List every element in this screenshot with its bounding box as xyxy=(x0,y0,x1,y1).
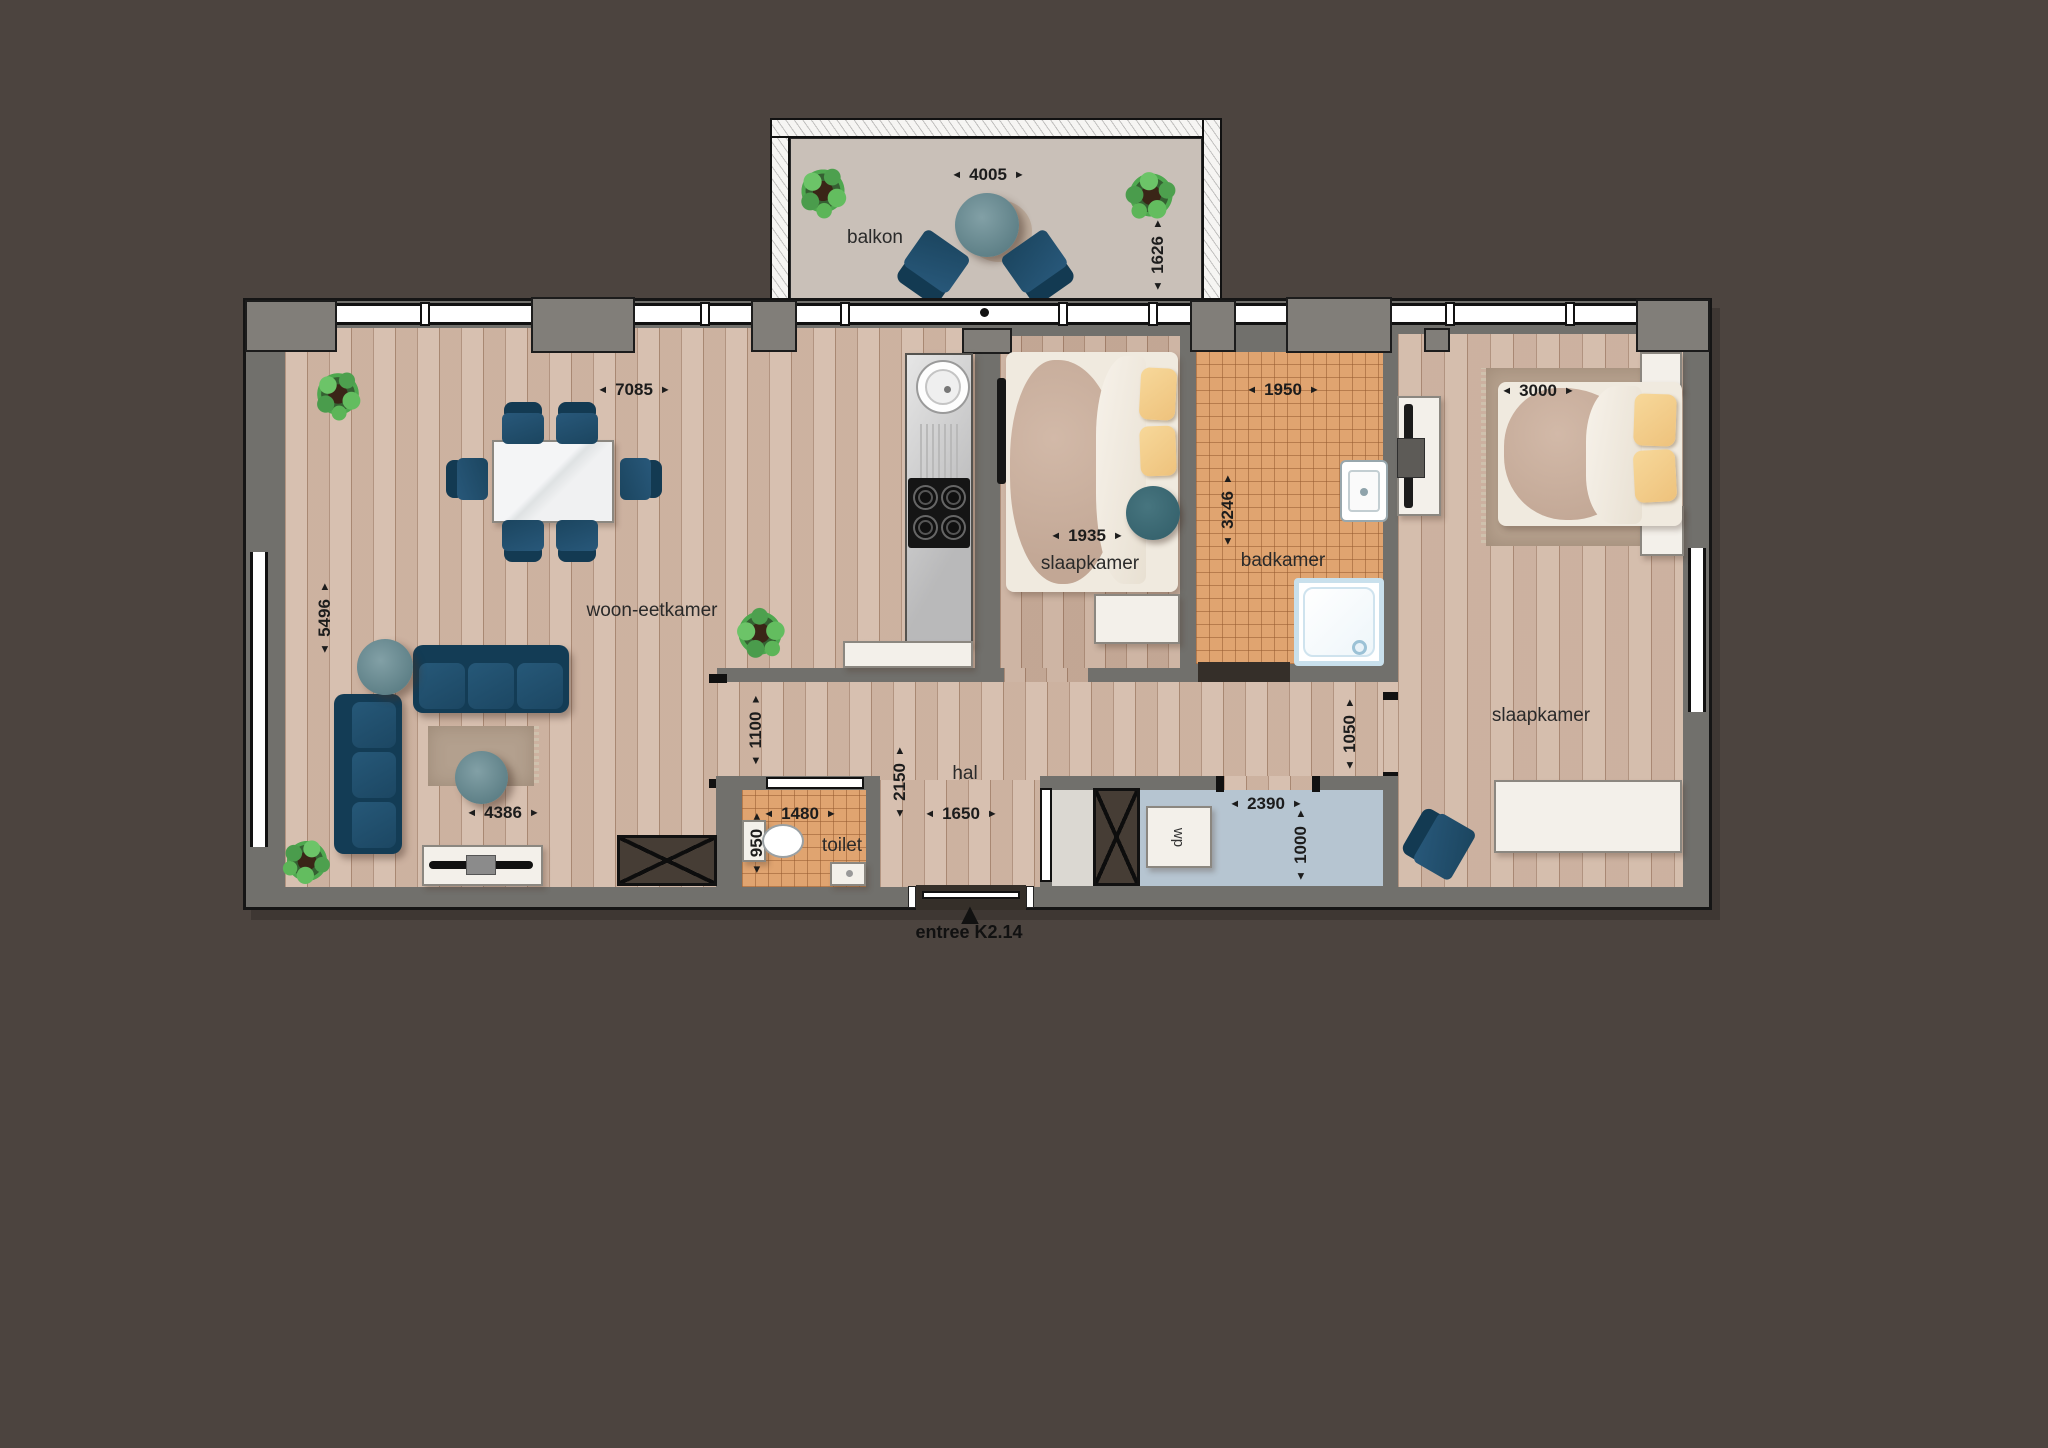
burner-icon xyxy=(913,485,938,510)
washbasin-drain xyxy=(1360,488,1368,496)
dim-arrow-right-icon: ► xyxy=(1113,531,1124,542)
dim-living-width-lower: ◄ 4386 ► xyxy=(443,801,563,825)
dim-value: 4386 xyxy=(484,803,522,823)
rug-fringe xyxy=(534,726,539,786)
window-right xyxy=(1688,548,1706,712)
dim-value: 4005 xyxy=(969,165,1007,185)
window-left xyxy=(250,552,268,847)
heat-pump-unit: wp xyxy=(1146,806,1212,868)
dim-arrow-right-icon: ► xyxy=(1014,170,1025,181)
room-label-living: woon-eetkamer xyxy=(587,600,718,622)
bed-1-duvet xyxy=(1096,356,1146,584)
room-label-hall: hal xyxy=(952,763,977,785)
dim-value: 1650 xyxy=(942,804,980,824)
plant-icon xyxy=(310,366,366,422)
dim-bedroom1-width: ◄ 1935 ► xyxy=(1027,524,1147,548)
dim-arrow-left-icon: ◄ xyxy=(1223,536,1234,547)
dim-arrow-right-icon: ► xyxy=(660,385,671,396)
window-mullion xyxy=(700,302,710,326)
dim-arrow-right-icon: ► xyxy=(752,811,763,822)
door-opening-bathroom xyxy=(1198,662,1290,682)
door-opening-closet xyxy=(1224,776,1312,790)
dim-arrow-left-icon: ◄ xyxy=(1229,799,1240,810)
wall-pillar xyxy=(1424,328,1450,352)
door-jamb xyxy=(709,674,727,683)
dim-arrow-right-icon: ► xyxy=(1564,386,1575,397)
dim-value: 1000 xyxy=(1291,826,1311,864)
wall-pillar xyxy=(245,300,337,352)
wall-pillar xyxy=(1190,300,1236,352)
dining-chair xyxy=(446,458,488,500)
bed-1-bench xyxy=(1094,594,1180,644)
dim-arrow-left-icon: ◄ xyxy=(1501,386,1512,397)
dim-arrow-left-icon: ◄ xyxy=(1050,531,1061,542)
dim-value: 1050 xyxy=(1340,715,1360,753)
door-jamb xyxy=(1312,776,1320,792)
door-jamb xyxy=(1383,692,1398,700)
entry-label: entree K2.14 xyxy=(915,922,1022,943)
dim-arrow-left-icon: ◄ xyxy=(751,755,762,766)
wall-pillar xyxy=(751,300,797,352)
door-opening-bedroom-2 xyxy=(1383,700,1398,772)
dim-arrow-right-icon: ► xyxy=(1223,473,1234,484)
dim-value: 5496 xyxy=(315,599,335,637)
balcony-railing-right xyxy=(1202,118,1222,302)
kitchen-cabinet xyxy=(843,641,973,668)
dim-hall-right-depth: ◄ 1050 ► xyxy=(1338,684,1362,784)
window-mullion xyxy=(1445,302,1455,326)
door-jamb xyxy=(908,886,916,908)
dim-value: 1100 xyxy=(746,712,766,749)
dim-value: 2150 xyxy=(890,763,910,801)
floor-closet-left xyxy=(1052,790,1093,886)
dim-value: 1950 xyxy=(1264,380,1302,400)
dim-arrow-right-icon: ► xyxy=(826,809,837,820)
dim-bathroom-width: ◄ 1950 ► xyxy=(1223,378,1343,402)
bed-1-pillow xyxy=(1139,425,1177,476)
sofa-vertical xyxy=(334,694,402,854)
dining-chair xyxy=(502,402,544,444)
dim-toilet-depth: ◄ 950 ► xyxy=(745,798,769,888)
balcony-table xyxy=(955,193,1019,257)
burner-icon xyxy=(941,485,966,510)
wall-toilet-right xyxy=(866,776,880,887)
sideboard xyxy=(1494,780,1682,853)
dim-arrow-right-icon: ► xyxy=(751,694,762,705)
dim-arrow-left-icon: ◄ xyxy=(752,864,763,875)
dim-value: 1935 xyxy=(1068,526,1106,546)
door-jamb xyxy=(1216,776,1224,792)
balcony-door-pivot xyxy=(980,308,989,317)
dim-living-width: ◄ 7085 ► xyxy=(570,378,698,402)
floor-plan-canvas: { "meta": { "type": "apartment-floor-pla… xyxy=(0,0,2048,1448)
coffee-table xyxy=(455,751,508,804)
balcony-door-post xyxy=(962,328,1012,354)
handbasin-drain xyxy=(846,870,853,877)
dim-arrow-right-icon: ► xyxy=(1296,808,1307,819)
closet-door-leaf xyxy=(1040,788,1052,882)
shaft-box xyxy=(1093,788,1140,886)
window-mullion xyxy=(1058,302,1068,326)
bed-1-pillow xyxy=(1139,367,1178,421)
window-top xyxy=(247,303,1708,325)
dim-value: 7085 xyxy=(615,380,653,400)
room-label-wp: wp xyxy=(1171,827,1188,846)
dim-value: 3000 xyxy=(1519,381,1557,401)
dim-arrow-right-icon: ► xyxy=(1153,218,1164,229)
room-label-balkon: balkon xyxy=(847,227,903,249)
door-jamb xyxy=(1026,886,1034,908)
dim-bedroom2-width: ◄ 3000 ► xyxy=(1478,379,1598,403)
wardrobe-handle xyxy=(1397,438,1425,478)
kitchen-faucet xyxy=(944,386,951,393)
dining-chair xyxy=(620,458,662,500)
shaft-box xyxy=(617,835,717,886)
dim-arrow-left-icon: ◄ xyxy=(320,644,331,655)
dim-bathroom-depth: ◄ 3246 ► xyxy=(1216,450,1240,570)
dim-arrow-left-icon: ◄ xyxy=(1345,760,1356,771)
dim-value: 1480 xyxy=(781,804,819,824)
wall-pillar xyxy=(1286,297,1392,353)
door-opening-bedroom-1 xyxy=(1004,668,1088,682)
dining-chair xyxy=(556,520,598,562)
sofa-horizontal xyxy=(413,645,569,713)
dim-arrow-left-icon: ◄ xyxy=(466,808,477,819)
dim-value: 1626 xyxy=(1148,236,1168,274)
bed-2-pillow xyxy=(1633,449,1678,503)
dining-table xyxy=(492,440,614,523)
dim-arrow-left-icon: ◄ xyxy=(597,385,608,396)
wall-pillar xyxy=(1636,299,1710,352)
room-label-toilet: toilet xyxy=(822,835,862,857)
balcony-railing-left xyxy=(770,118,790,302)
window-mullion xyxy=(1565,302,1575,326)
bed-2-pillow xyxy=(1633,393,1677,446)
floor-hall xyxy=(717,682,1398,780)
dim-arrow-right-icon: ► xyxy=(987,809,998,820)
dim-arrow-left-icon: ◄ xyxy=(951,170,962,181)
window-mullion xyxy=(420,302,430,326)
window-mullion xyxy=(1148,302,1158,326)
burner-icon xyxy=(941,515,966,540)
dim-balkon-width: ◄ 4005 ► xyxy=(928,163,1048,187)
dim-arrow-left-icon: ◄ xyxy=(1153,281,1164,292)
dim-living-depth: ◄ 5496 ► xyxy=(313,558,337,678)
plant-icon xyxy=(794,162,852,220)
wall-pillar xyxy=(531,297,635,353)
dim-arrow-right-icon: ► xyxy=(529,808,540,819)
dim-arrow-right-icon: ► xyxy=(320,581,331,592)
balcony-railing-top xyxy=(770,118,1222,138)
wall-toilet-left xyxy=(716,776,742,887)
dim-value: 2390 xyxy=(1247,794,1285,814)
dim-value: 950 xyxy=(747,829,767,857)
dim-arrow-left-icon: ◄ xyxy=(1246,385,1257,396)
wardrobe-rail xyxy=(997,378,1006,484)
dining-chair xyxy=(502,520,544,562)
room-label-bedroom-1: slaapkamer xyxy=(1041,553,1139,575)
shower-drain xyxy=(1352,640,1367,655)
side-table xyxy=(357,639,413,695)
window-mullion xyxy=(840,302,850,326)
dim-arrow-left-icon: ◄ xyxy=(924,809,935,820)
dim-closet-depth: ◄ 1000 ► xyxy=(1289,795,1313,895)
dim-hall-passage: ◄ 1100 ► xyxy=(744,680,768,780)
dim-arrow-right-icon: ► xyxy=(895,745,906,756)
dim-value: 3246 xyxy=(1218,491,1238,529)
room-label-bathroom: badkamer xyxy=(1241,550,1326,572)
burner-icon xyxy=(913,515,938,540)
toilet-sliding-door xyxy=(766,777,864,789)
dim-arrow-right-icon: ► xyxy=(1345,697,1356,708)
kitchen-sink-basin xyxy=(925,369,961,405)
dining-chair xyxy=(556,402,598,444)
tv-stand xyxy=(466,855,496,875)
dim-arrow-right-icon: ► xyxy=(1309,385,1320,396)
room-label-bedroom-2: slaapkamer xyxy=(1492,705,1590,727)
dim-balkon-depth: ◄ 1626 ► xyxy=(1146,195,1170,315)
dim-arrow-left-icon: ◄ xyxy=(1296,871,1307,882)
dim-hall-width: ◄ 1650 ► xyxy=(901,802,1021,826)
